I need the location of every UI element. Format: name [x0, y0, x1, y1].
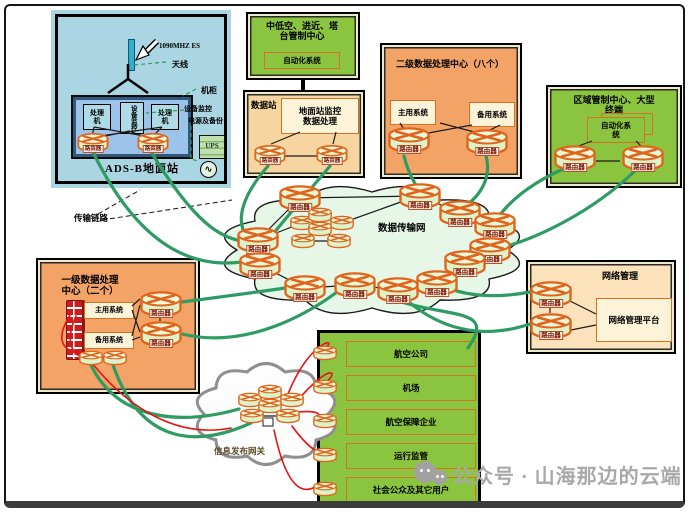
primary-backup-box: 备用系统: [84, 332, 134, 349]
router-icon: 路由器: [414, 269, 460, 297]
router-icon: 路由器: [315, 144, 349, 165]
router-icon: 路由器: [138, 320, 184, 348]
router-icon: [239, 408, 265, 424]
router-icon: 路由器: [472, 211, 518, 239]
network-mgmt-title: 网络管理: [602, 271, 638, 281]
router-icon: [275, 408, 301, 424]
wechat-icon-small: [432, 470, 447, 485]
cabinet-label: 机柜: [201, 86, 217, 95]
router-icon: 路由器: [76, 132, 110, 153]
user-row-support: 航空保障企业: [346, 409, 476, 435]
secondary-title: 二级数据处理中心（八个）: [387, 59, 513, 69]
router-icon: 路由器: [332, 271, 378, 299]
router-icon: [312, 447, 338, 463]
router-icon: [312, 481, 338, 497]
monitor-unit: 设备监控: [120, 102, 144, 134]
user-row-airports: 机场: [346, 375, 476, 401]
user-row-airlines: 航空公司: [346, 341, 476, 367]
router-icon: [312, 379, 338, 395]
secondary-center-panel: 二级数据处理中心（八个） 主用系统 备用系统: [380, 43, 522, 179]
tower-control-panel: 中低空、进近、塔 台管制中心 自动化系统: [246, 12, 360, 80]
antenna-mast-icon: [128, 39, 135, 71]
processor-right: 处理 机: [151, 104, 179, 130]
secondary-main-box: 主用系统: [390, 100, 436, 125]
primary-title: 一级数据处理 中心（二个）: [58, 276, 122, 298]
adsb-station-panel: 1090MHZ ES 天线 机柜 处理 机 处理 机 设备监控 设备监控 电源及…: [55, 14, 227, 184]
processor-left: 处理 机: [83, 104, 111, 130]
cloud-label: 数据传输网: [378, 224, 426, 235]
ac-power-icon: ∿: [200, 161, 217, 178]
ups-box: UPS: [199, 135, 225, 159]
tower-automation-box: 自动化系统: [264, 52, 340, 69]
watermark-text: 公众号 · 山海那边的云端: [452, 460, 682, 489]
router-icon: 路由器: [552, 144, 598, 172]
router-icon: 路由器: [237, 251, 283, 279]
data-station-title: 数据站: [251, 101, 277, 111]
regional-automation-box: 自动化系 统: [587, 117, 645, 143]
signal-label: 1090MHZ ES: [159, 42, 200, 50]
transmission-link-label: 传输链路: [74, 214, 108, 224]
diagram-canvas: 1090MHZ ES 天线 机柜 处理 机 处理 机 设备监控 设备监控 电源及…: [0, 0, 689, 512]
ups-label: UPS: [205, 143, 220, 150]
router-icon: [78, 350, 104, 366]
network-platform-box: 网络管理平台: [596, 298, 672, 342]
power-backup-label: 电源及备份: [188, 117, 223, 125]
ground-monitor-box: 地面站监控 数据处理: [281, 98, 359, 134]
router-icon: 路由器: [528, 312, 574, 340]
router-icon: [312, 345, 338, 361]
gateway-label: 信息发布网关: [214, 447, 265, 457]
router-icon: [326, 233, 352, 249]
router-icon: 路由器: [386, 126, 432, 154]
device-monitor-label: 设备监控: [184, 105, 212, 113]
router-icon: 路由器: [136, 132, 170, 153]
adsb-title: ADS-B地面站: [86, 163, 198, 176]
router-icon: [312, 413, 338, 429]
tower-control-title: 中低空、进近、塔 台管制中心: [251, 21, 353, 42]
router-icon: 路由器: [138, 290, 184, 318]
router-icon: [290, 233, 316, 249]
router-icon: 路由器: [620, 144, 666, 172]
router-icon: 路由器: [235, 226, 281, 254]
router-icon: 路由器: [253, 144, 287, 165]
primary-main-box: 主用系统: [84, 302, 134, 319]
router-icon: 路由器: [282, 274, 328, 302]
router-icon: 路由器: [528, 280, 574, 308]
regional-center-panel: 区域管制中心、大型 终端 自动化系 统: [546, 85, 682, 188]
router-icon: [102, 350, 128, 366]
secondary-backup-box: 备用系统: [469, 102, 515, 127]
antenna-label: 天线: [172, 60, 188, 69]
router-icon: 路由器: [464, 128, 510, 156]
